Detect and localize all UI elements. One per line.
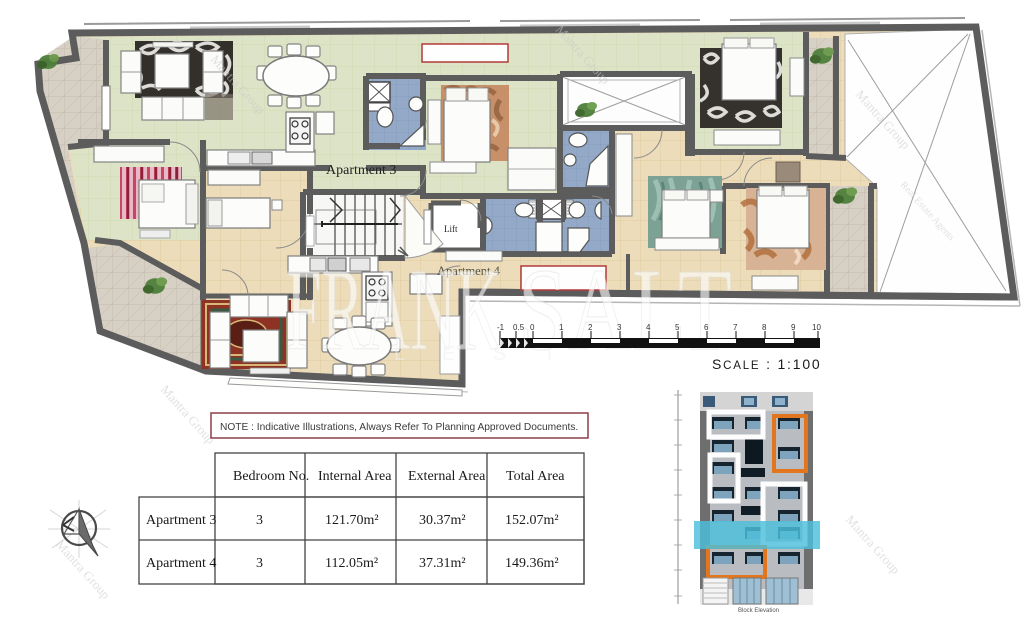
svg-text:8: 8: [762, 323, 767, 332]
svg-text:37.31m²: 37.31m²: [419, 556, 466, 571]
svg-text:152.07m²: 152.07m²: [505, 513, 559, 528]
svg-text:30.37m²: 30.37m²: [419, 513, 466, 528]
svg-text:-1: -1: [497, 323, 505, 332]
svg-text:5: 5: [675, 323, 680, 332]
svg-text:NOTE : Indicative Illustration: NOTE : Indicative Illustrations, Always …: [220, 422, 578, 433]
svg-text:112.05m²: 112.05m²: [325, 556, 378, 571]
svg-text:4: 4: [646, 323, 651, 332]
svg-text:Apartment 3: Apartment 3: [326, 163, 396, 178]
svg-text:10: 10: [812, 323, 821, 332]
svg-text:3: 3: [256, 513, 263, 528]
svg-text:Block Elevation: Block Elevation: [738, 608, 779, 614]
svg-text:3: 3: [617, 323, 622, 332]
svg-text:External Area: External Area: [408, 469, 486, 484]
svg-text:Apartment 3: Apartment 3: [146, 513, 216, 528]
svg-text:2: 2: [588, 323, 593, 332]
svg-text:3: 3: [256, 556, 263, 571]
svg-text:9: 9: [791, 323, 796, 332]
svg-text:149.36m²: 149.36m²: [505, 556, 559, 571]
svg-text:Total Area: Total Area: [506, 469, 565, 484]
svg-text:121.70m²: 121.70m²: [325, 513, 379, 528]
svg-text:Apartment 4: Apartment 4: [146, 556, 216, 571]
svg-text:7: 7: [733, 323, 738, 332]
svg-text:0: 0: [530, 323, 535, 332]
svg-text:6: 6: [704, 323, 709, 332]
svg-text:Bedroom No.: Bedroom No.: [233, 469, 309, 484]
svg-text:Internal Area: Internal Area: [318, 469, 392, 484]
svg-text:Lift: Lift: [444, 224, 458, 234]
svg-text:0.5: 0.5: [513, 323, 525, 332]
svg-text:1: 1: [559, 323, 564, 332]
